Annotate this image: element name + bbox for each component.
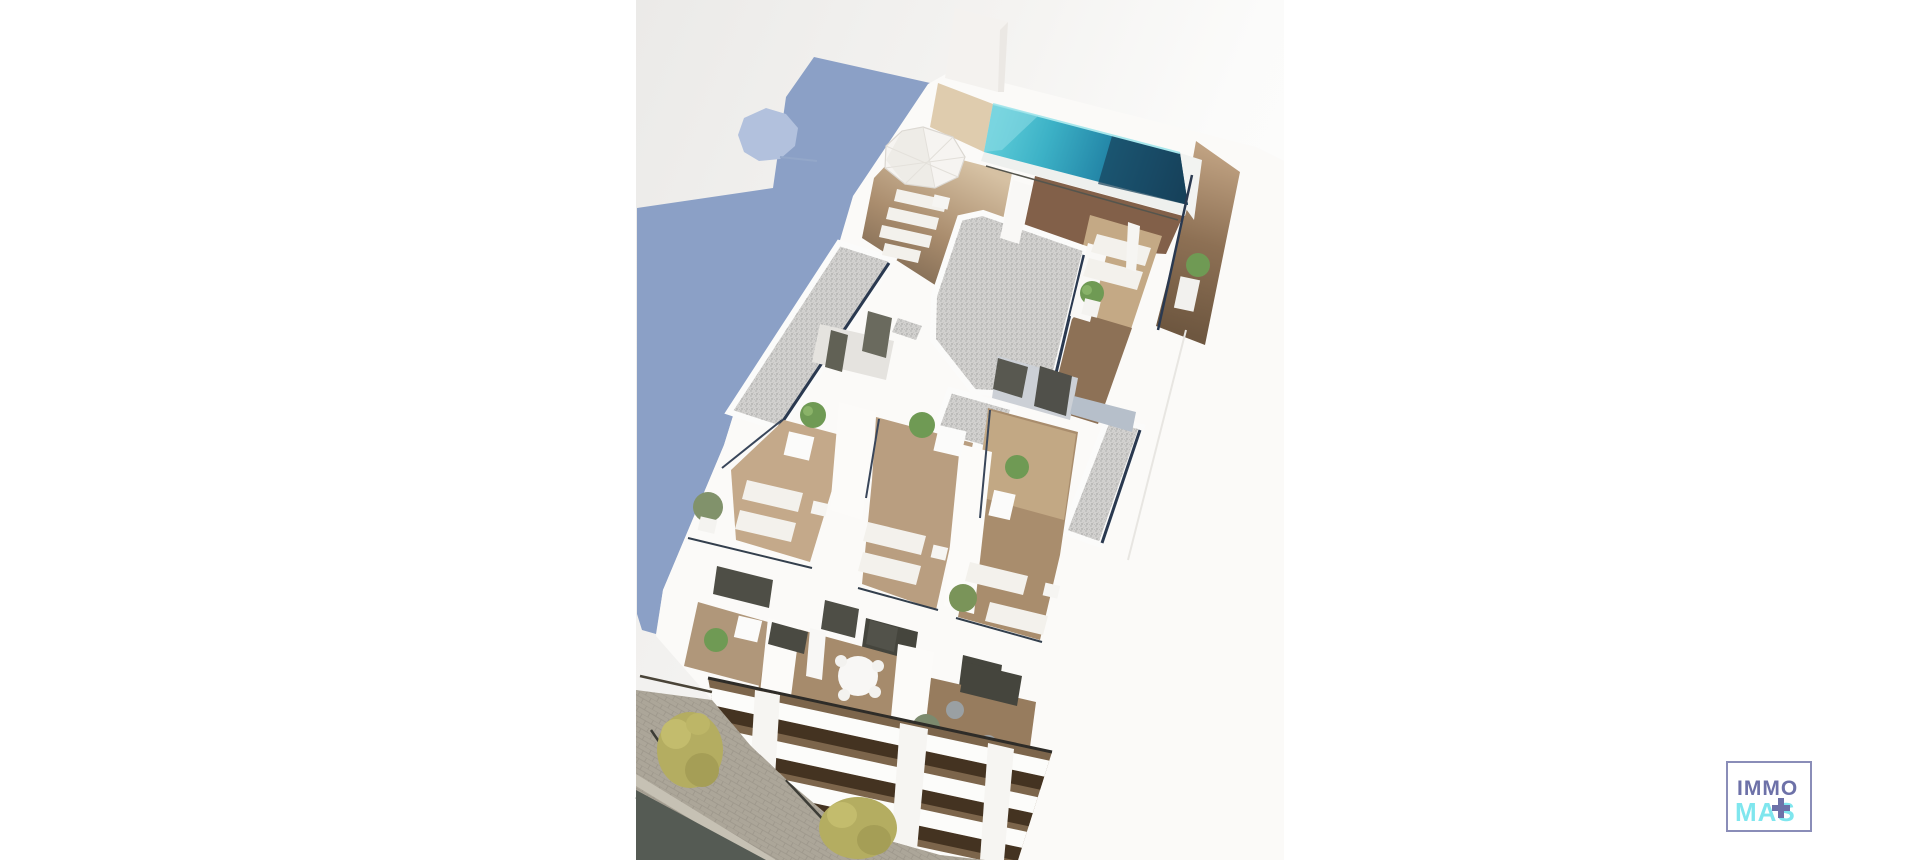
svg-text:MAS: MAS: [1735, 797, 1796, 827]
